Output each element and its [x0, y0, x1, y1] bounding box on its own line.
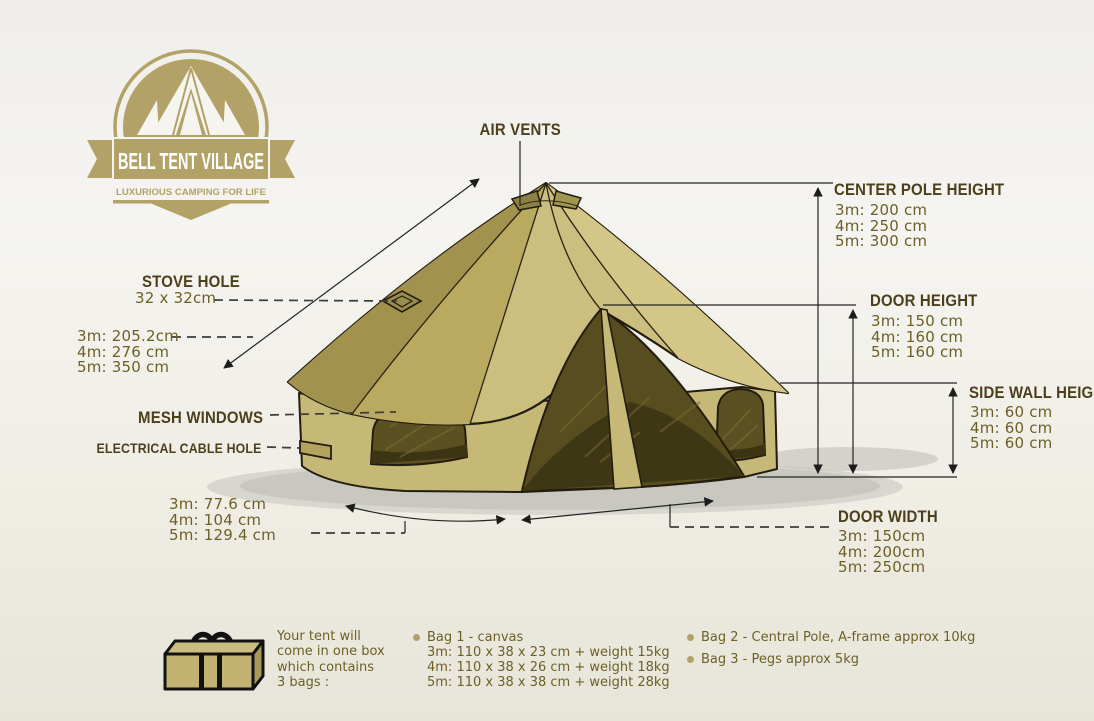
door-width-values: 3m: 150cm 4m: 200cm 5m: 250cm — [838, 529, 925, 576]
bag1-title: Bag 1 - canvas — [427, 630, 670, 645]
packing-intro: Your tent will come in one box which con… — [277, 629, 385, 691]
logo-title: BELL TENT VILLAGE — [118, 148, 264, 174]
duffel-bag-icon — [157, 626, 275, 694]
center-pole-height-values: 3m: 200 cm 4m: 250 cm 5m: 300 cm — [835, 203, 927, 250]
packing-intro-line: which contains — [277, 660, 385, 675]
door-height-label: DOOR HEIGHT — [870, 292, 992, 309]
side-wall-height-values: 3m: 60 cm 4m: 60 cm 5m: 60 cm — [970, 405, 1053, 452]
logo-tagline: LUXURIOUS CAMPING FOR LIFE — [116, 187, 266, 197]
bag1-line: 3m: 110 x 38 x 23 cm + weight 15kg — [427, 645, 670, 660]
packing-intro-line: come in one box — [277, 644, 385, 659]
measure-value: 5m: 160 cm — [871, 345, 963, 361]
electrical-cable-hole-label: ELECTRICAL CABLE HOLE — [40, 441, 261, 455]
bag2-details: Bag 2 - Central Pole, A-frame approx 10k… — [701, 630, 975, 645]
bag3-details: Bag 3 - Pegs approx 5kg — [701, 652, 859, 667]
door-height-values: 3m: 150 cm 4m: 160 cm 5m: 160 cm — [871, 314, 963, 361]
infographic-canvas: BELL TENT VILLAGE LUXURIOUS CAMPING FOR … — [0, 0, 1094, 721]
measure-value: 5m: 350 cm — [77, 360, 179, 376]
packing-intro-line: 3 bags : — [277, 675, 385, 690]
measure-value: 5m: 250cm — [838, 560, 925, 576]
stove-hole-value: 32 x 32cm — [135, 291, 216, 307]
bag1-bullet — [413, 634, 420, 641]
measure-value: 32 x 32cm — [135, 291, 216, 307]
measure-value: 5m: 129.4 cm — [169, 528, 276, 544]
bell-tent-village-logo: BELL TENT VILLAGE LUXURIOUS CAMPING FOR … — [85, 38, 297, 223]
measure-value: 5m: 300 cm — [835, 234, 927, 250]
measure-value: 5m: 60 cm — [970, 436, 1053, 452]
slant-height-values: 3m: 205.2cm 4m: 276 cm 5m: 350 cm — [77, 329, 179, 376]
stove-hole-label: STOVE HOLE — [142, 273, 253, 290]
bag1-line: 4m: 110 x 38 x 26 cm + weight 18kg — [427, 660, 670, 675]
base-width-values: 3m: 77.6 cm 4m: 104 cm 5m: 129.4 cm — [169, 497, 276, 544]
bag3-bullet — [687, 656, 694, 663]
logo-ribbon: BELL TENT VILLAGE — [87, 138, 295, 180]
bag2-bullet — [687, 634, 694, 641]
tent-roof — [288, 183, 788, 425]
side-wall-height-label: SIDE WALL HEIGHT — [969, 384, 1094, 401]
air-vents-label: AIR VENTS — [450, 121, 590, 138]
packing-intro-line: Your tent will — [277, 629, 385, 644]
door-width-label: DOOR WIDTH — [838, 508, 951, 525]
bag1-details: Bag 1 - canvas 3m: 110 x 38 x 23 cm + we… — [427, 630, 670, 690]
mesh-windows-label: MESH WINDOWS — [100, 409, 263, 426]
bag1-line: 5m: 110 x 38 x 38 cm + weight 28kg — [427, 675, 670, 690]
logo-tail — [113, 200, 269, 220]
center-pole-height-label: CENTER POLE HEIGHT — [834, 181, 1027, 198]
